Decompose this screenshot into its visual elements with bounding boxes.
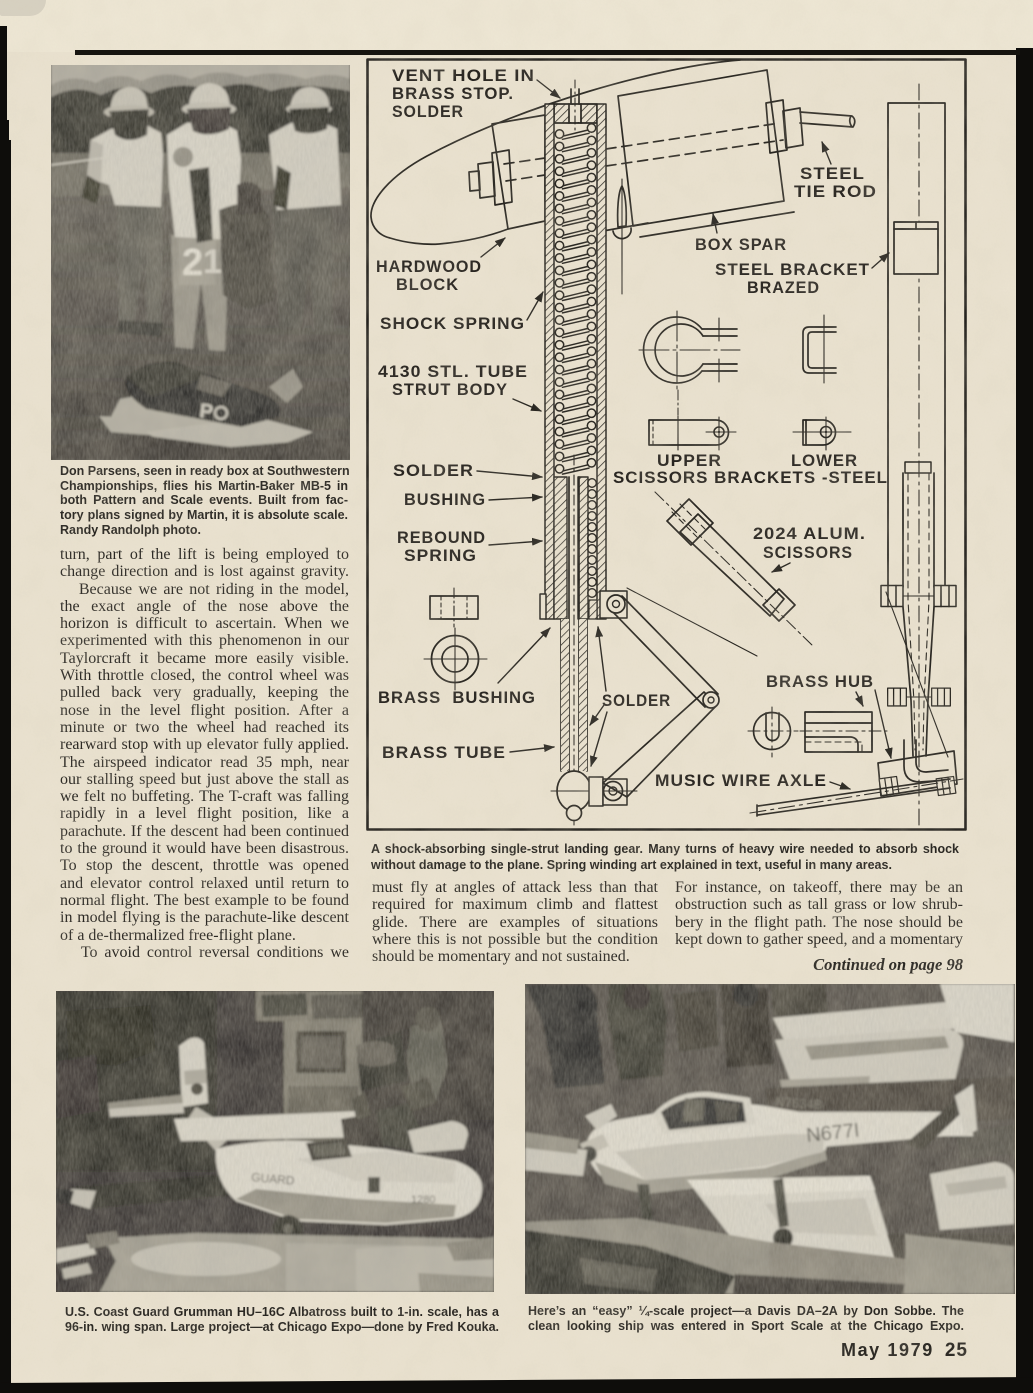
svg-text:MUSIC WIRE AXLE: MUSIC WIRE AXLE: [655, 771, 827, 790]
svg-text:SOLDER: SOLDER: [602, 691, 671, 710]
svg-text:STEEL: STEEL: [800, 164, 865, 183]
svg-text:VENT HOLE IN: VENT HOLE IN: [392, 66, 535, 85]
svg-text:STEEL BRACKET: STEEL BRACKET: [715, 260, 870, 279]
svg-text:BRASS STOP.: BRASS STOP.: [392, 84, 514, 103]
svg-text:SHOCK SPRING: SHOCK SPRING: [380, 314, 525, 333]
svg-text:SCISSORS: SCISSORS: [763, 543, 853, 562]
svg-text:SCISSORS BRACKETS -STEEL: SCISSORS BRACKETS -STEEL: [613, 468, 888, 487]
svg-text:BLOCK: BLOCK: [396, 275, 459, 294]
svg-text:SOLDER: SOLDER: [392, 102, 464, 121]
svg-text:STRUT BODY: STRUT BODY: [392, 380, 508, 399]
svg-text:BRASS HUB: BRASS HUB: [766, 672, 874, 691]
svg-text:4130 STL. TUBE: 4130 STL. TUBE: [378, 362, 528, 381]
svg-text:2024 ALUM.: 2024 ALUM.: [753, 524, 866, 543]
svg-text:REBOUND: REBOUND: [397, 528, 486, 547]
svg-text:HARDWOOD: HARDWOOD: [376, 257, 482, 276]
svg-text:SOLDER: SOLDER: [393, 461, 474, 480]
svg-text:BRAZED: BRAZED: [747, 278, 820, 297]
svg-text:BOX SPAR: BOX SPAR: [695, 235, 787, 254]
svg-text:BRASS BUSHING: BRASS BUSHING: [378, 688, 536, 707]
svg-text:TIE ROD: TIE ROD: [794, 182, 877, 201]
svg-text:BUSHING: BUSHING: [404, 490, 486, 509]
svg-text:SPRING: SPRING: [404, 546, 477, 565]
svg-text:BRASS TUBE: BRASS TUBE: [382, 743, 506, 762]
